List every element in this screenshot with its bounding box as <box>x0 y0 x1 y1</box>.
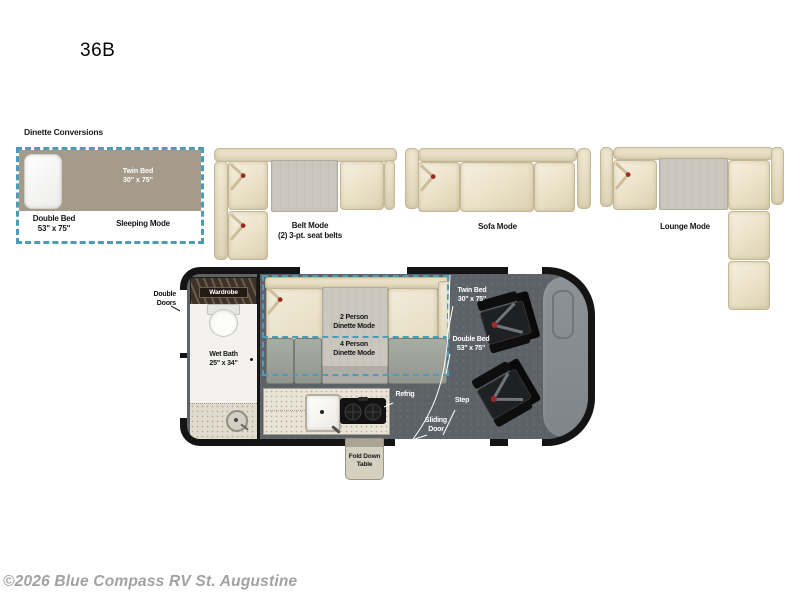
seat-belt-icon <box>615 162 635 190</box>
seat-belt-icon <box>420 164 440 192</box>
double-bed-label: Double Bed 53" x 75" <box>25 214 83 235</box>
window-opening <box>508 439 542 446</box>
twin-bed-label: Twin Bed 30" x 75" <box>81 167 195 186</box>
section-label-dinette-conversions: Dinette Conversions <box>24 127 103 137</box>
window-opening <box>508 267 542 274</box>
fold-down-table: Fold Down Table <box>345 438 384 480</box>
twin-bed-label: Twin Bed 30" x 75" <box>448 286 496 304</box>
sink <box>305 394 341 432</box>
dinette-4-person-label: 4 Person Dinette Mode <box>322 340 386 358</box>
sliding-door-label: Sliding Door <box>416 416 456 434</box>
double-bed-label: Double Bed 53" x 75" <box>445 335 497 353</box>
sleeping-mode-label: Sleeping Mode <box>89 219 197 229</box>
sofa-mode-label: Sofa Mode <box>400 222 595 232</box>
double-door-opening <box>180 290 187 353</box>
bed-surface: Twin Bed 30" x 75" <box>19 150 201 211</box>
seat-belt-icon <box>230 163 250 191</box>
seat-cushion <box>613 160 657 210</box>
shower-handle <box>240 423 248 430</box>
sofa-armrest <box>405 148 419 209</box>
wet-bath-label: Wet Bath 25" x 34" <box>190 350 257 368</box>
belt-mode-label: Belt Mode (2) 3-pt. seat belts <box>240 221 380 242</box>
seat-cushion <box>728 211 770 260</box>
stove-cooktop <box>340 397 386 425</box>
fold-down-table-label: Fold Down Table <box>346 453 383 470</box>
floorplan-page: 36B Dinette Conversions Twin Bed 30" x 7… <box>0 0 800 600</box>
page-title: 36B <box>80 40 115 62</box>
seat-cushion <box>340 161 384 210</box>
shower-drain-icon <box>226 410 248 432</box>
sofa-armrest <box>384 160 395 210</box>
seat-cushion <box>534 162 575 212</box>
refrig-label: Refrig <box>385 390 425 399</box>
faucet <box>331 425 341 434</box>
copyright-text: ©2026 Blue Compass RV St. Augustine <box>3 573 297 591</box>
partition-wall <box>257 274 260 439</box>
window-opening <box>300 267 407 274</box>
seat-cushion <box>228 161 268 210</box>
sofa-mode-panel: Sofa Mode <box>400 145 595 245</box>
captain-chair <box>469 355 543 429</box>
sleeping-mode-panel: Twin Bed 30" x 75" Double Bed 53" x 75" … <box>16 147 204 244</box>
sofa-backrest <box>418 148 577 162</box>
dinette-2-person-label: 2 Person Dinette Mode <box>322 313 386 331</box>
sleeping-caption-strip: Double Bed 53" x 75" Sleeping Mode <box>19 211 201 241</box>
seat-cushion <box>418 162 460 212</box>
wardrobe-cabinet: Wardrobe <box>190 277 257 306</box>
lounge-mode-label: Lounge Mode <box>595 222 775 232</box>
seat-cushion <box>460 162 534 212</box>
sofa-armrest <box>577 148 591 209</box>
wet-bath-room: Wet Bath 25" x 34" <box>190 304 257 403</box>
pillow <box>24 154 62 209</box>
seat-belt-icon <box>469 355 543 429</box>
drain-dot <box>234 418 238 422</box>
sofa-armrest <box>771 147 784 205</box>
seat-cushion <box>728 261 770 310</box>
steering-wheel-icon <box>552 290 574 339</box>
double-door-opening <box>180 358 187 418</box>
sofa-armrest <box>600 147 613 207</box>
sofa-side-backrest <box>214 161 228 260</box>
sliding-door-opening <box>395 439 490 446</box>
lounge-mode-panel: Lounge Mode <box>595 145 790 315</box>
seat-cushion <box>728 160 770 210</box>
kitchen-counter <box>263 388 390 435</box>
dinette-conversion-divider <box>262 336 449 338</box>
sink-drain <box>320 410 324 414</box>
step-label: Step <box>445 396 479 405</box>
shower-floor <box>190 403 257 439</box>
dinette-table <box>659 158 728 210</box>
toilet-bowl <box>209 309 238 337</box>
van-body-outline: Wardrobe Wet Bath 25" x 34" <box>180 267 595 446</box>
belt-mode-panel: Belt Mode (2) 3-pt. seat belts <box>205 145 400 265</box>
wardrobe-label: Wardrobe <box>199 287 248 298</box>
dinette-table <box>271 160 338 212</box>
van-floor: Wardrobe Wet Bath 25" x 34" <box>187 274 588 439</box>
